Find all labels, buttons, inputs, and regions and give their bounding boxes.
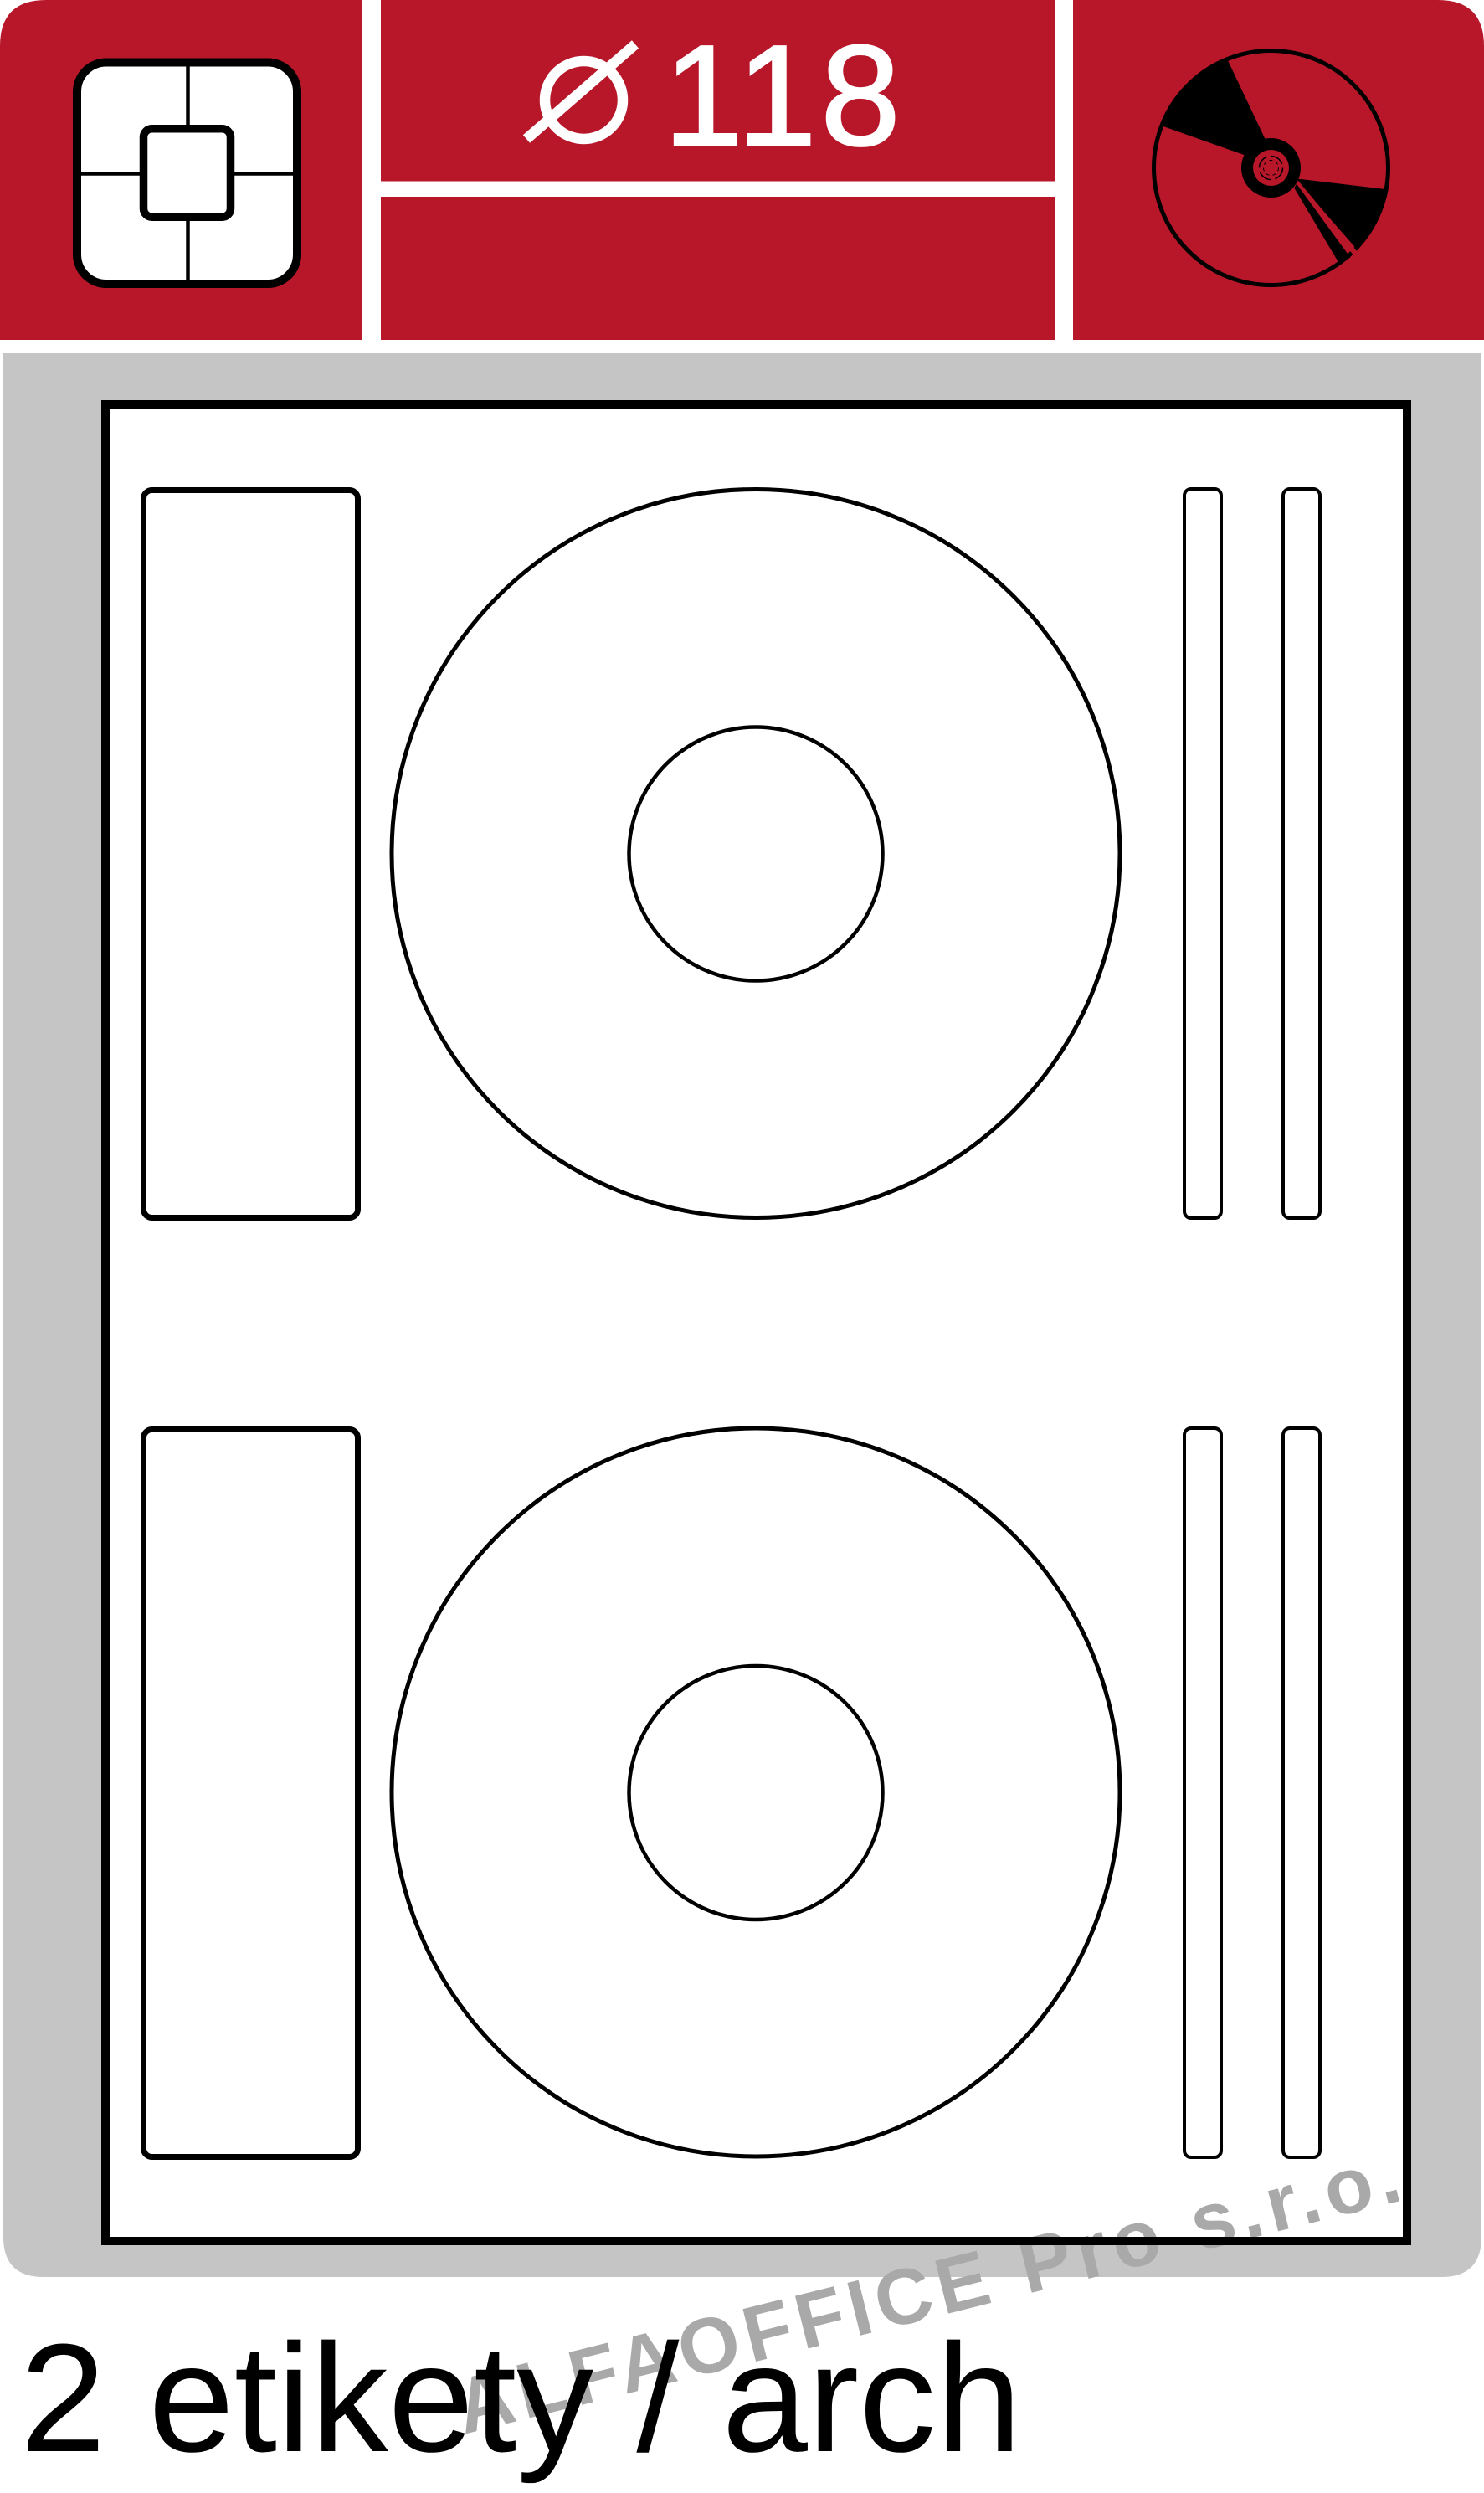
svg-text:118: 118 — [664, 16, 905, 176]
svg-text:2 etikety / arch: 2 etikety / arch — [20, 2311, 1022, 2484]
